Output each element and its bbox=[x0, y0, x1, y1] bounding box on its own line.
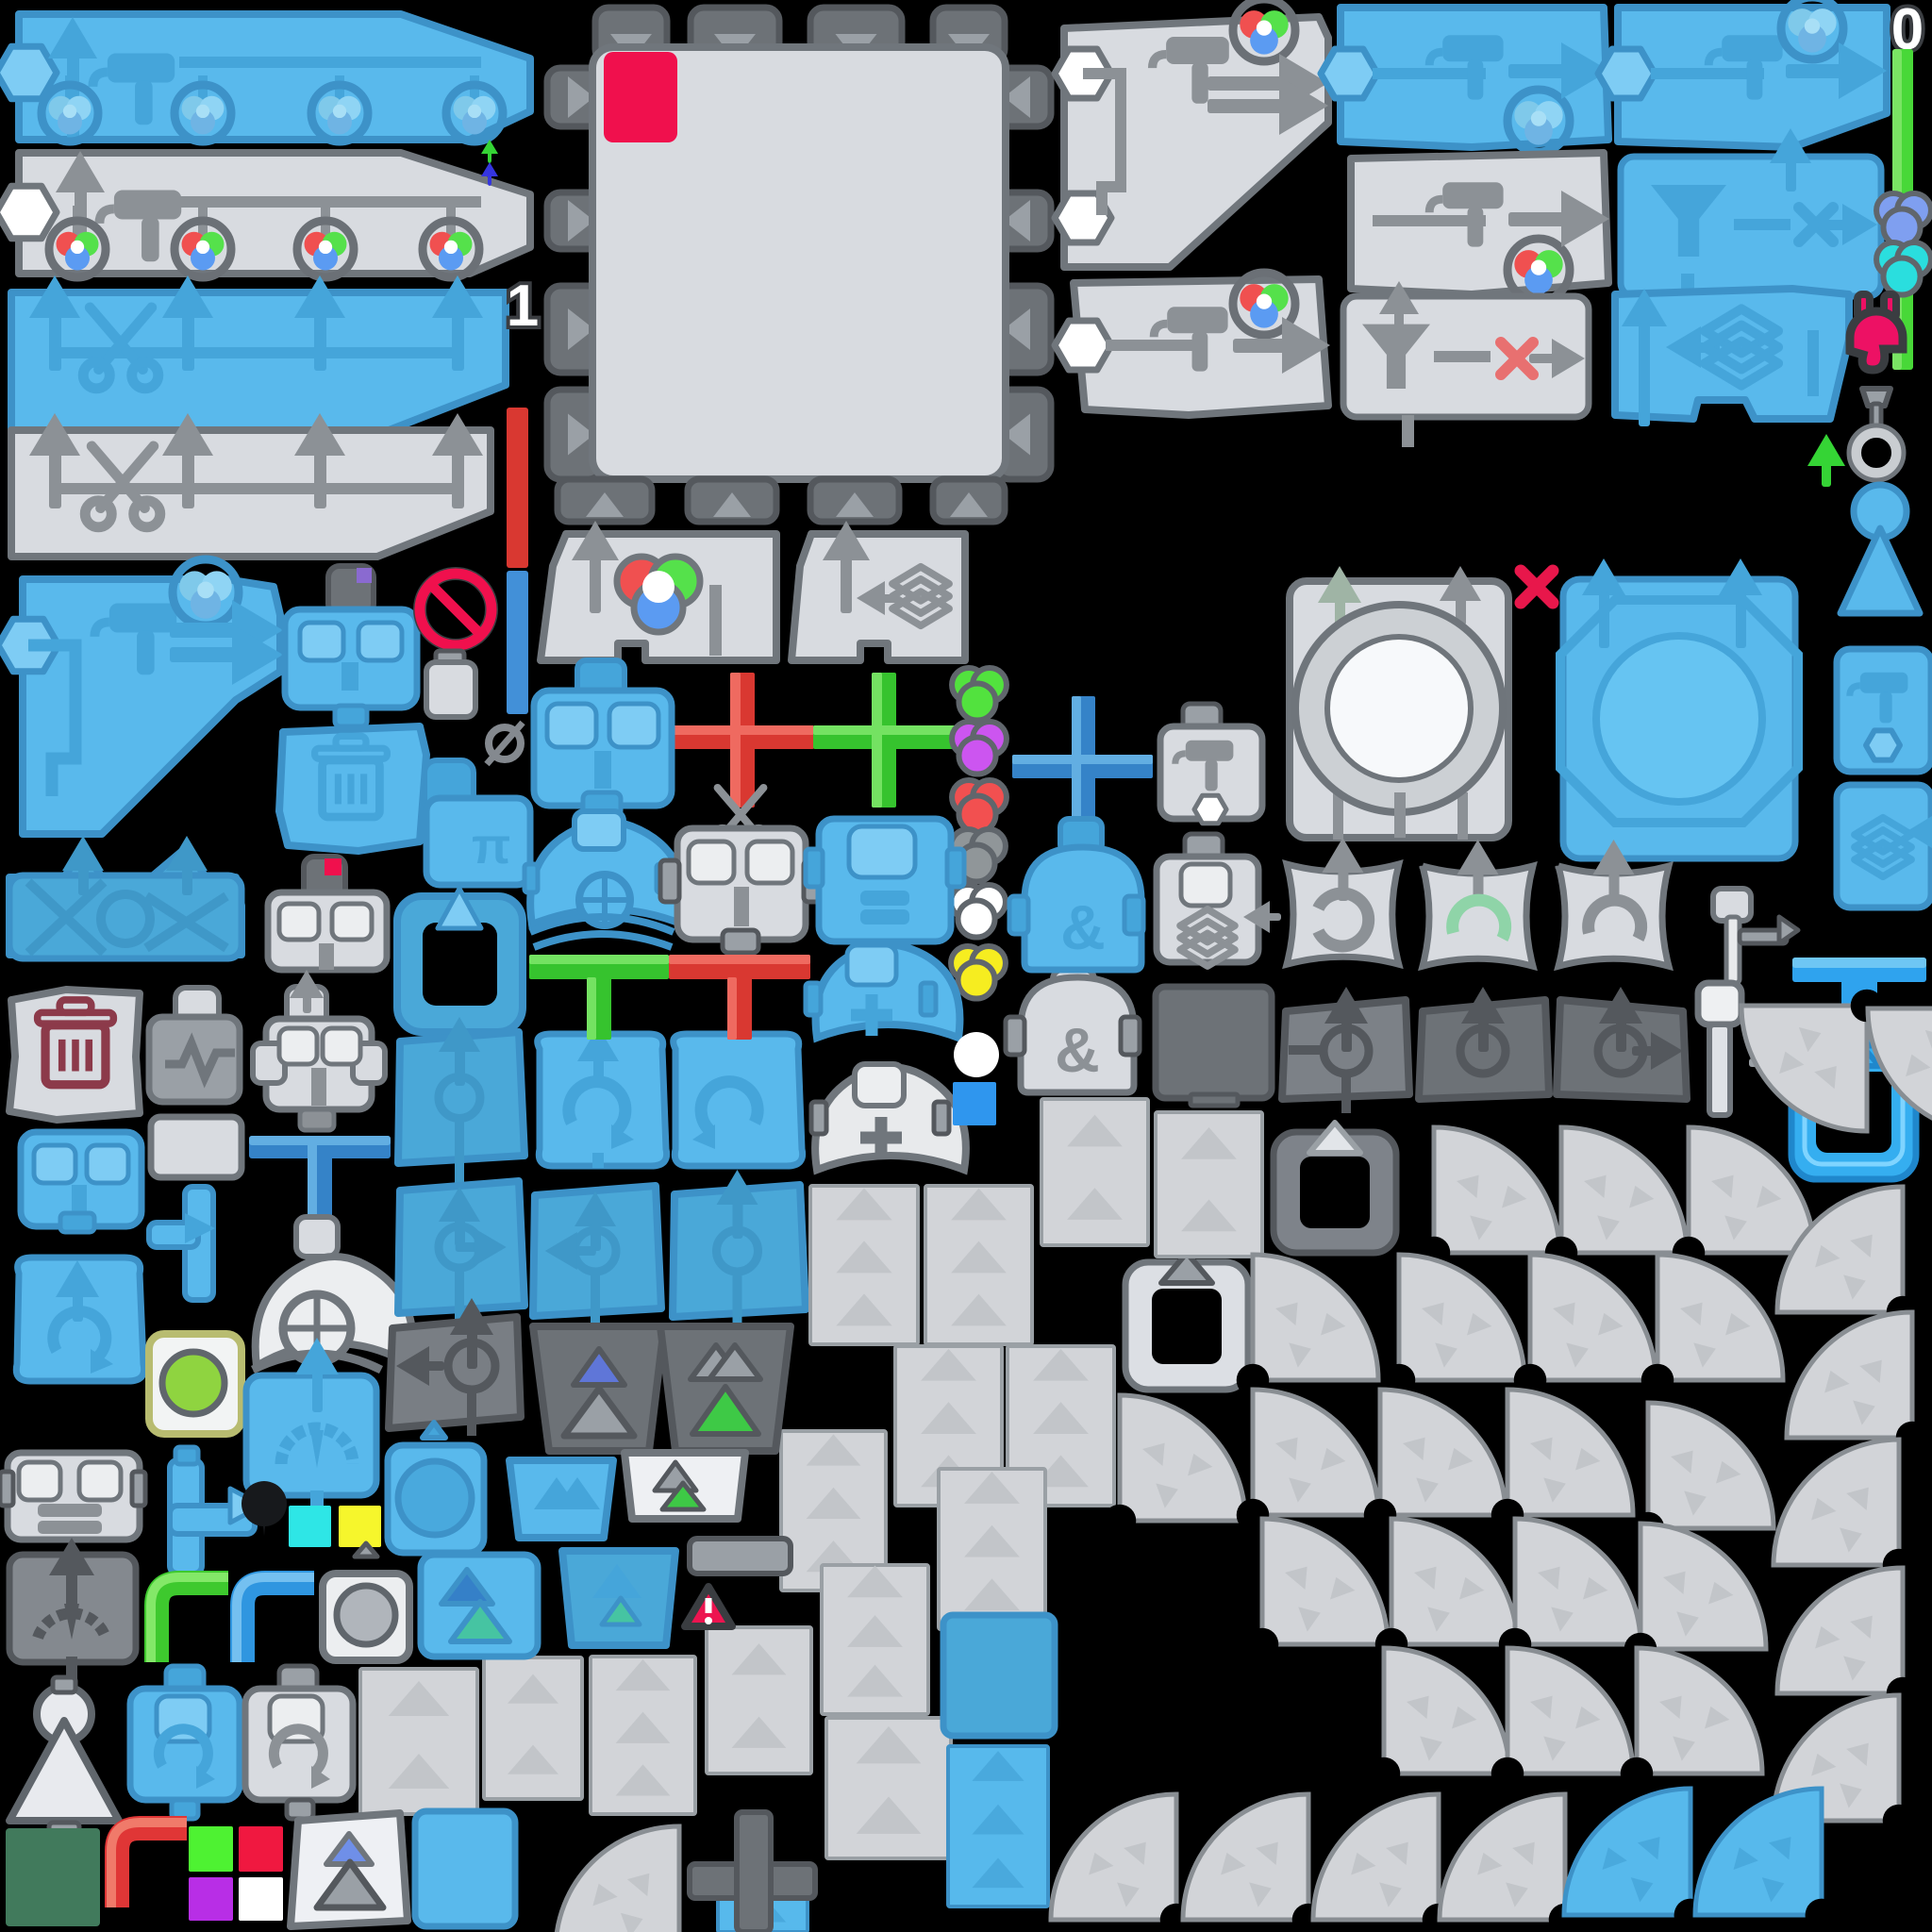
svg-text:&: & bbox=[1060, 892, 1106, 962]
svg-text:&: & bbox=[1055, 1015, 1100, 1085]
svg-text:1: 1 bbox=[507, 274, 539, 339]
svg-text:π: π bbox=[472, 818, 510, 874]
